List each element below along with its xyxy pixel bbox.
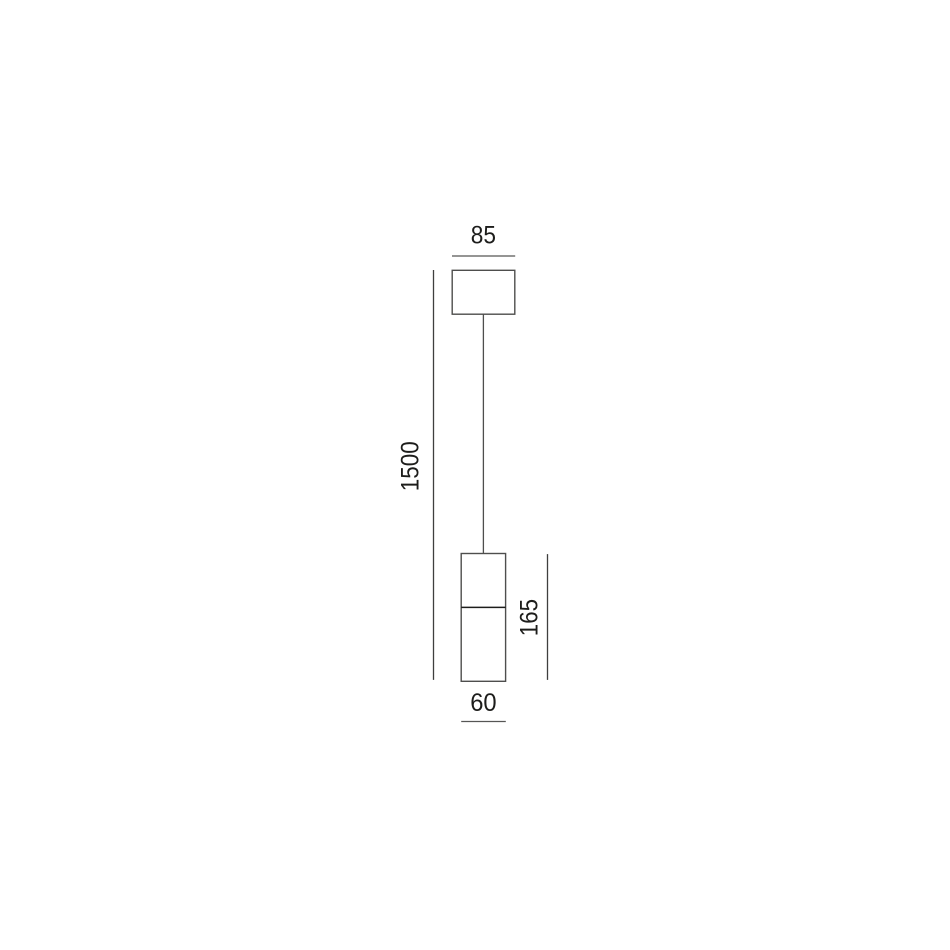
svg-text:60: 60 xyxy=(470,689,496,717)
svg-text:85: 85 xyxy=(471,222,496,250)
svg-text:1500: 1500 xyxy=(397,441,425,491)
svg-text:165: 165 xyxy=(515,599,543,636)
